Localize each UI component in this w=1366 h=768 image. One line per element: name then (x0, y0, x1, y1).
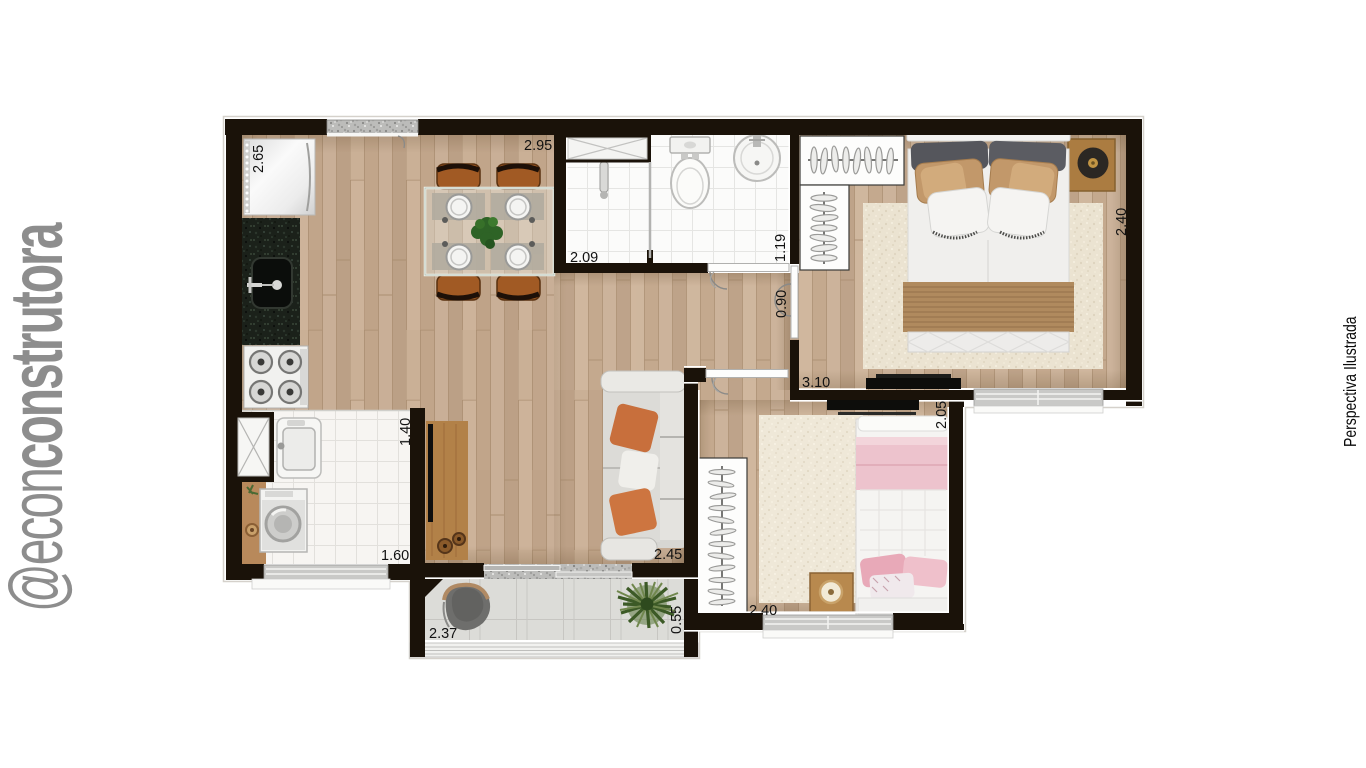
svg-text:2.95: 2.95 (524, 138, 552, 154)
svg-text:3.10: 3.10 (802, 375, 830, 391)
svg-text:1.60: 1.60 (381, 548, 409, 564)
svg-text:2.65: 2.65 (251, 145, 267, 173)
svg-text:2.45: 2.45 (654, 547, 682, 563)
svg-text:2.37: 2.37 (429, 626, 457, 642)
svg-text:2.05: 2.05 (934, 401, 950, 429)
svg-text:@econconstrutora: @econconstrutora (0, 222, 79, 612)
svg-text:1.19: 1.19 (773, 234, 789, 262)
svg-text:0.55: 0.55 (669, 606, 685, 634)
svg-text:0.90: 0.90 (774, 290, 790, 318)
svg-text:2.40: 2.40 (749, 603, 777, 619)
svg-text:Perspectiva Ilustrada: Perspectiva Ilustrada (1342, 316, 1361, 447)
svg-text:2.40: 2.40 (1114, 208, 1130, 236)
svg-text:2.09: 2.09 (570, 250, 598, 266)
svg-text:1.40: 1.40 (398, 418, 414, 446)
